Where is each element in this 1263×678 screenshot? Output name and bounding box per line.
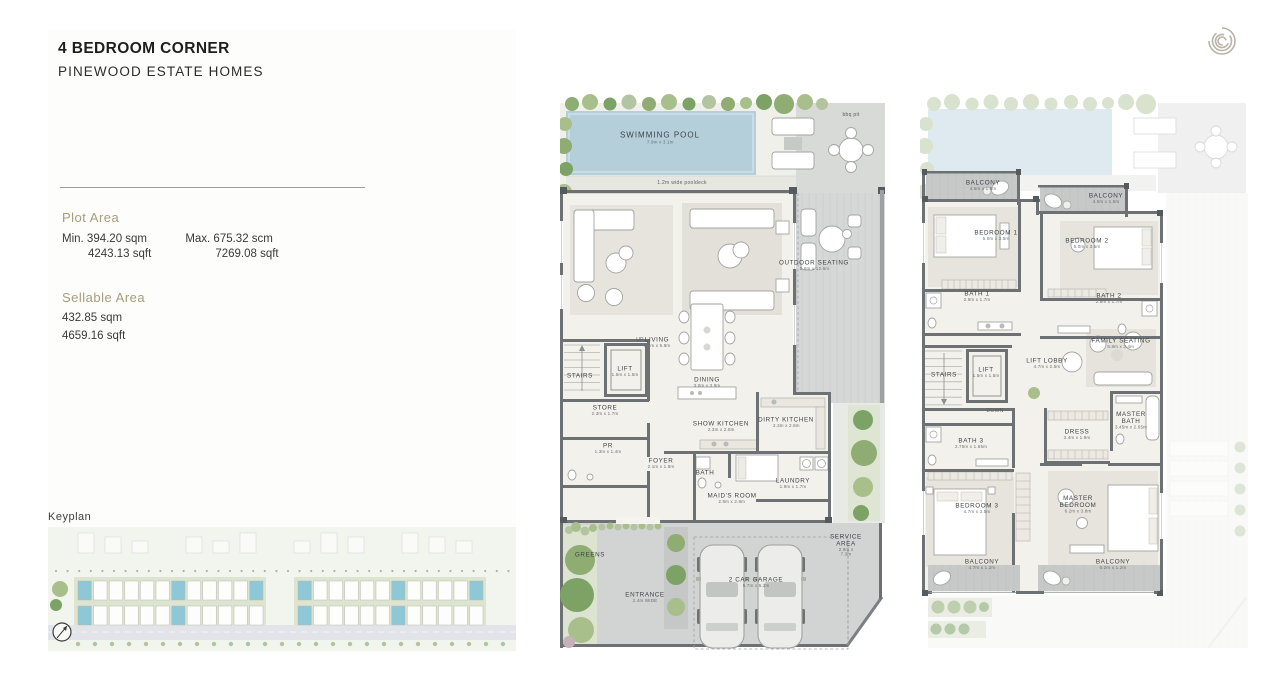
section-divider xyxy=(60,187,365,188)
sellable-sqm: 432.85 sqm xyxy=(62,311,145,327)
plant-icon xyxy=(1028,387,1040,399)
driveway-trees-icon xyxy=(666,534,686,616)
plot-area-heading: Plot Area xyxy=(62,210,279,225)
sellable-sqft: 4659.16 sqft xyxy=(62,329,145,345)
plot-min-sqft: 4243.13 sqft xyxy=(62,247,151,262)
page-subtitle: PINEWOOD ESTATE HOMES xyxy=(58,64,264,79)
page-title: 4 BEDROOM CORNER xyxy=(58,40,230,58)
north-compass-icon xyxy=(53,623,71,641)
plot-max-sqm: Max. 675.32 scm xyxy=(185,232,278,247)
keyplan-map xyxy=(48,527,516,651)
plot-max-sqft: 7269.08 sqft xyxy=(185,247,278,262)
entrance-gate-icon xyxy=(616,517,660,524)
sellable-area-section: Sellable Area 432.85 sqm 4659.16 sqft xyxy=(62,290,145,344)
bed-icon xyxy=(926,487,995,555)
spiral-logo xyxy=(1203,22,1241,60)
car-icon xyxy=(696,545,748,648)
floorplan-page: 4 BEDROOM CORNER PINEWOOD ESTATE HOMES P… xyxy=(0,0,1263,678)
plot-area-section: Plot Area Min. 394.20 sqm 4243.13 sqft M… xyxy=(62,210,279,262)
ground-floor-artwork xyxy=(560,93,885,650)
car-icon xyxy=(754,545,806,648)
first-floor-plan: BALCONY4.5m x 1.5mBALCONY4.5m x 1.5mBEDR… xyxy=(920,93,1255,650)
dining-table-icon xyxy=(679,304,735,370)
ground-floor-plan: SWIMMING POOL7.9m x 3.1m1.2m wide poolde… xyxy=(560,93,885,650)
keyplan-label: Keyplan xyxy=(48,511,91,523)
plot-area-min: Min. 394.20 sqm 4243.13 sqft xyxy=(62,232,151,262)
sellable-area-heading: Sellable Area xyxy=(62,290,145,305)
swimming-pool-shape xyxy=(566,111,756,175)
first-floor-artwork xyxy=(920,93,1255,650)
plot-area-max: Max. 675.32 scm 7269.08 sqft xyxy=(185,232,278,262)
kitchen-island-icon xyxy=(678,387,736,399)
plot-min-sqm: Min. 394.20 sqm xyxy=(62,232,151,247)
